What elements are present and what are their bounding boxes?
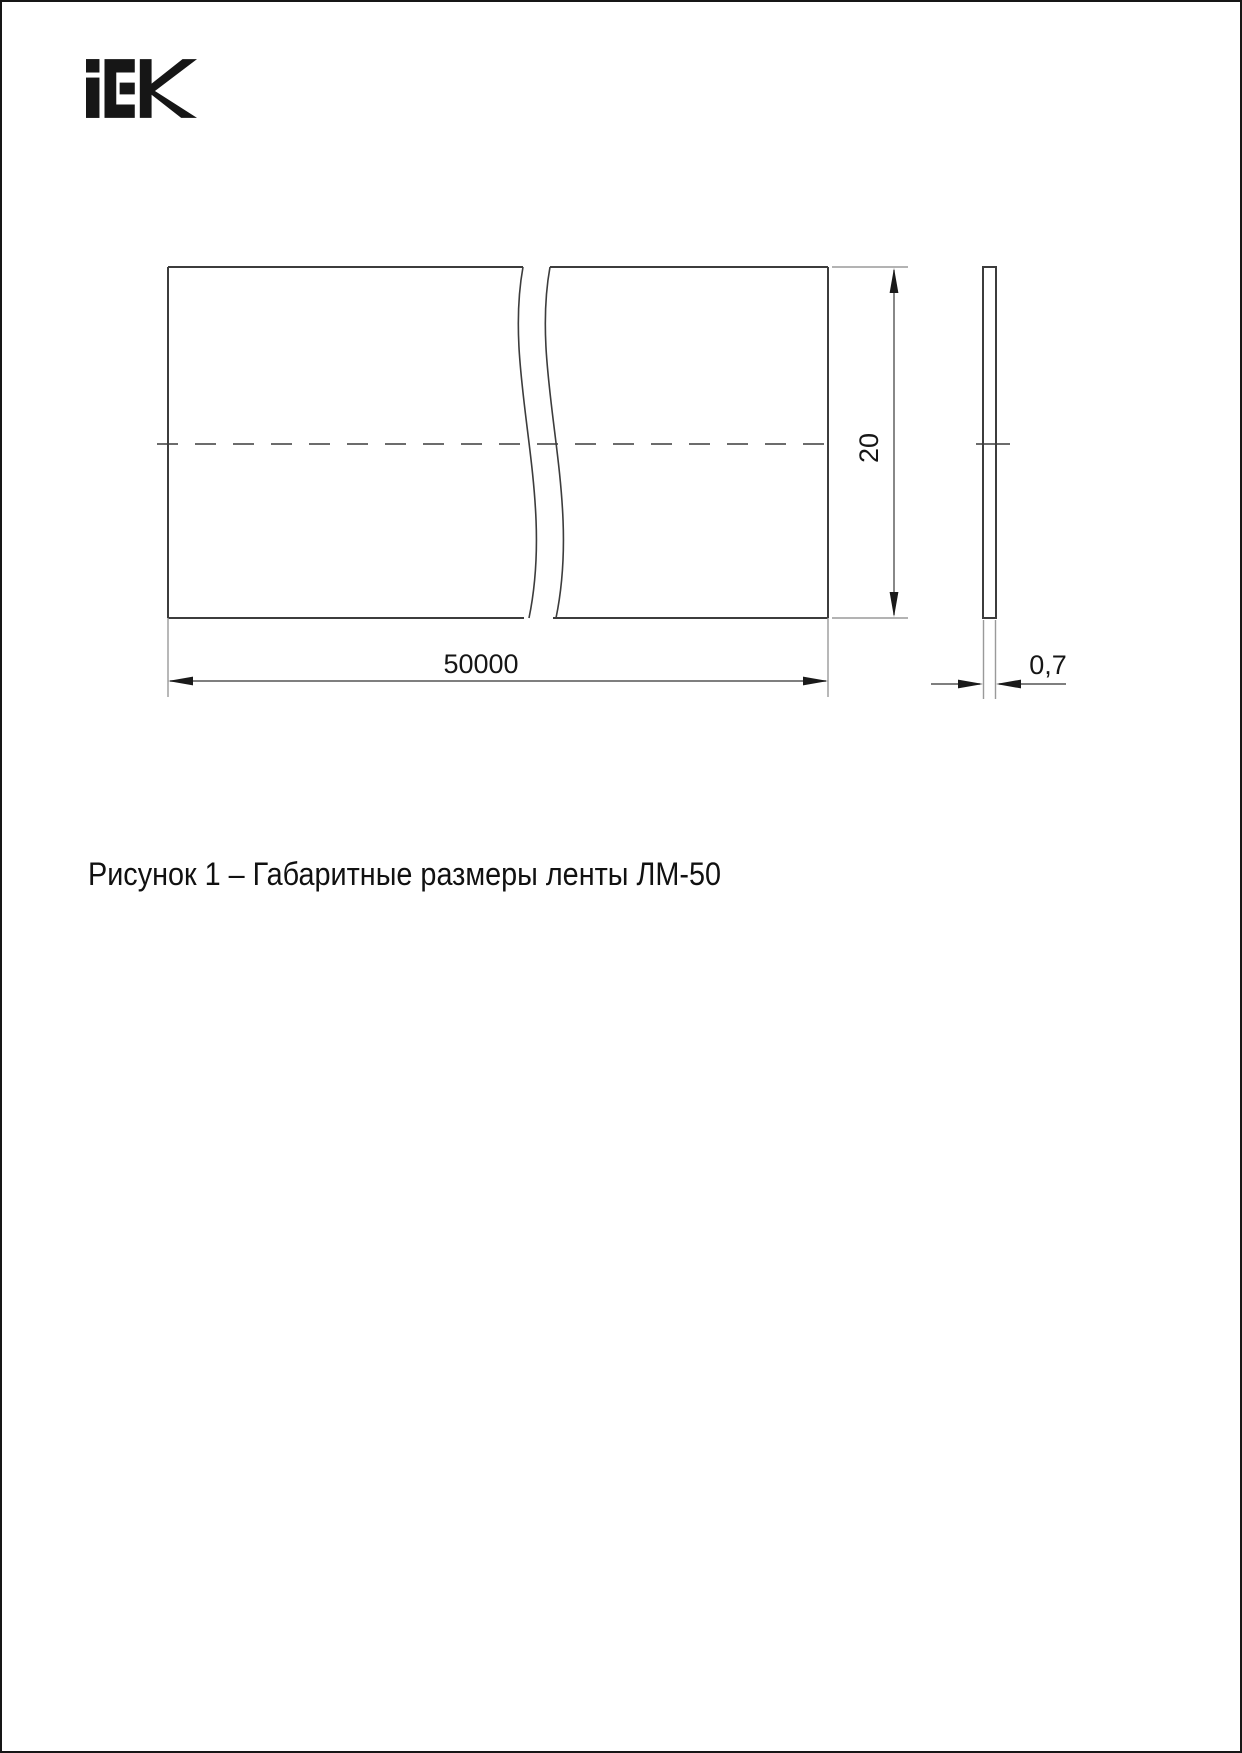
thickness-dimension: 0,7 xyxy=(931,620,1067,699)
width-arrow-up xyxy=(890,268,899,293)
logo-i-stem xyxy=(86,78,99,118)
logo-e-middle-bar xyxy=(120,83,135,95)
side-view xyxy=(976,267,1010,618)
width-arrow-down xyxy=(890,592,899,617)
length-dimension-label: 50000 xyxy=(443,649,518,679)
length-arrow-left xyxy=(168,677,193,686)
logo-i-dot xyxy=(86,59,99,72)
width-dimension-label: 20 xyxy=(854,433,884,463)
thickness-arrow-right xyxy=(958,680,983,689)
length-dimension: 50000 xyxy=(168,618,828,697)
thickness-arrow-left xyxy=(996,680,1021,689)
logo-k xyxy=(140,59,197,118)
dimension-drawing: 20 50000 0,7 xyxy=(122,232,1122,712)
document-page: 20 50000 0,7 Рисунок 1 – Габаритные xyxy=(0,0,1242,1753)
iek-logo-glyphs xyxy=(86,59,197,118)
iek-logo xyxy=(86,59,197,118)
break-line-right xyxy=(545,267,563,618)
figure-caption: Рисунок 1 – Габаритные размеры ленты ЛМ-… xyxy=(88,856,721,893)
front-view xyxy=(157,267,840,618)
thickness-dimension-label: 0,7 xyxy=(1029,650,1067,680)
side-view-outline xyxy=(983,267,996,618)
length-arrow-right xyxy=(803,677,828,686)
break-line-left xyxy=(518,267,536,618)
width-dimension: 20 xyxy=(832,267,908,618)
